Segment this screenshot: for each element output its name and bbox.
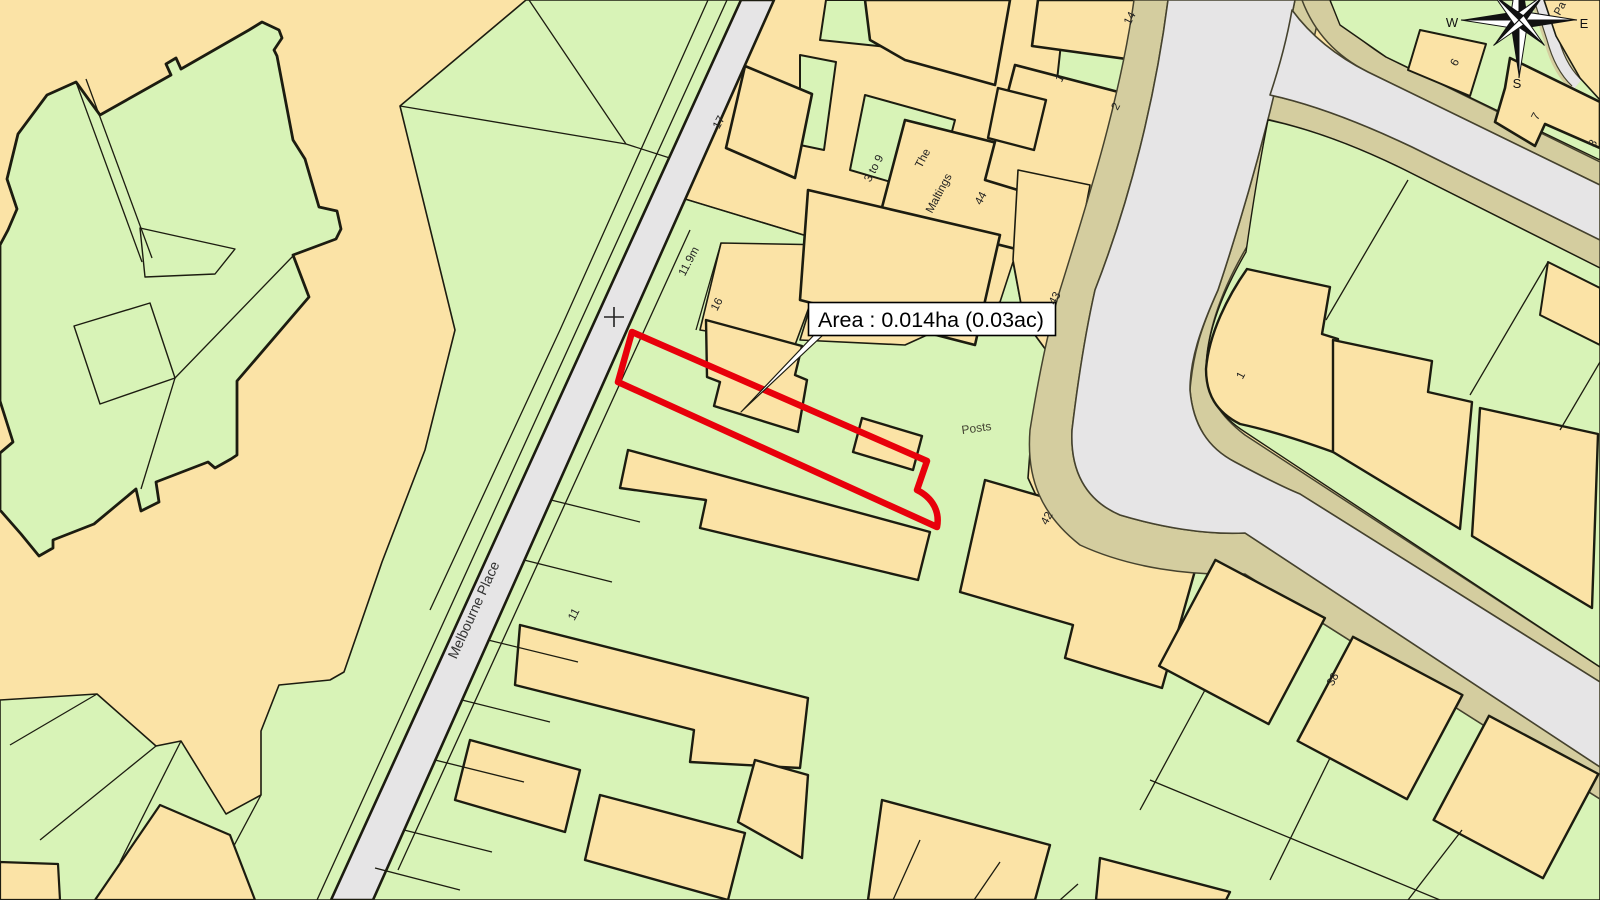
svg-text:W: W <box>1446 15 1459 30</box>
svg-text:S: S <box>1513 76 1522 91</box>
svg-text:E: E <box>1580 16 1589 31</box>
svg-text:Area : 0.014ha (0.03ac): Area : 0.014ha (0.03ac) <box>818 308 1044 332</box>
